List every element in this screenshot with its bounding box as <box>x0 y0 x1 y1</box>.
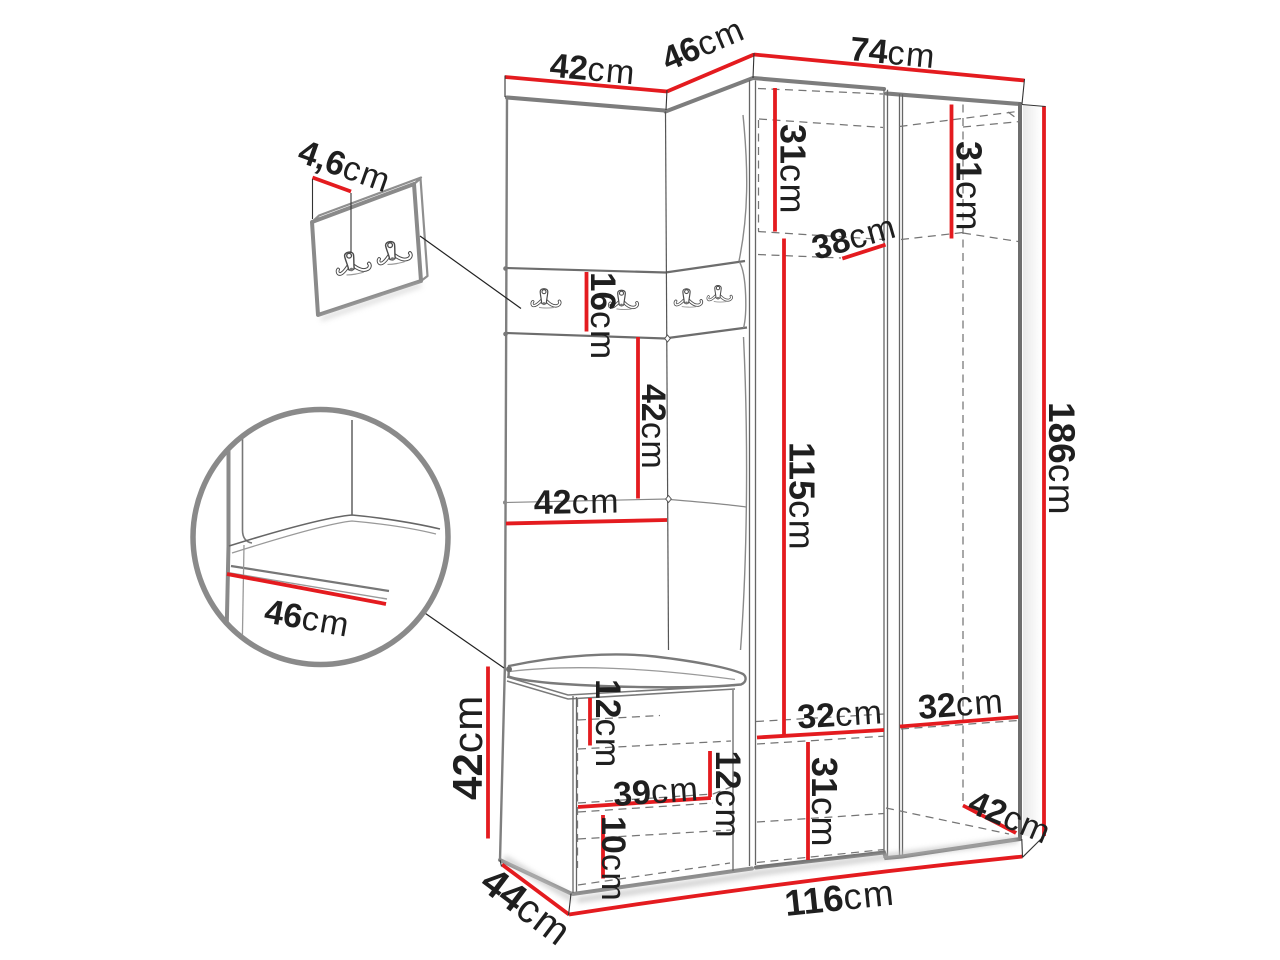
svg-text:115cm: 115cm <box>782 442 823 551</box>
svg-text:186cm: 186cm <box>1041 402 1082 516</box>
svg-text:12cm: 12cm <box>588 679 628 769</box>
svg-text:10cm: 10cm <box>594 816 632 902</box>
svg-text:42cm: 42cm <box>634 384 672 470</box>
svg-text:32cm: 32cm <box>917 682 1006 727</box>
svg-text:42cm: 42cm <box>533 483 620 522</box>
svg-text:31cm: 31cm <box>804 757 845 848</box>
svg-text:42cm: 42cm <box>444 694 491 800</box>
svg-text:31cm: 31cm <box>773 124 814 215</box>
svg-text:39cm: 39cm <box>612 770 701 814</box>
svg-text:12cm: 12cm <box>708 751 747 840</box>
svg-text:42cm: 42cm <box>548 47 637 93</box>
svg-text:32cm: 32cm <box>796 693 884 736</box>
svg-text:16cm: 16cm <box>583 272 622 361</box>
svg-text:31cm: 31cm <box>949 141 990 232</box>
